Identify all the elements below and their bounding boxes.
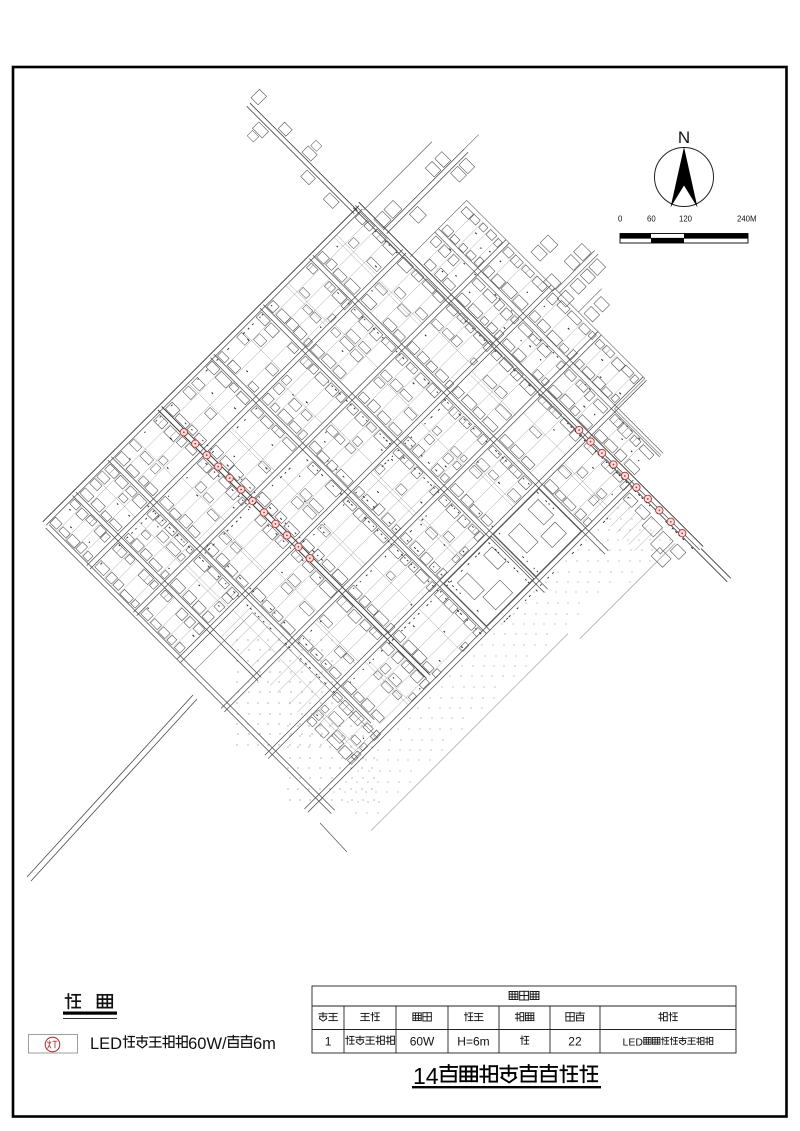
svg-text:LED: LED: [623, 1037, 644, 1049]
svg-text:LED: LED: [90, 1035, 122, 1053]
svg-text:120: 120: [679, 215, 693, 224]
svg-text:0: 0: [618, 215, 623, 224]
svg-text:H=6m: H=6m: [457, 1035, 489, 1049]
svg-text:N: N: [678, 128, 690, 147]
svg-text:60W/: 60W/: [188, 1035, 227, 1053]
svg-text:60W: 60W: [410, 1035, 435, 1049]
svg-text:6m: 6m: [253, 1035, 276, 1053]
svg-text:1: 1: [325, 1035, 332, 1049]
svg-text:22: 22: [568, 1035, 582, 1049]
svg-text:14: 14: [413, 1063, 439, 1089]
svg-text:60: 60: [647, 215, 656, 224]
svg-text:240M: 240M: [737, 215, 757, 224]
